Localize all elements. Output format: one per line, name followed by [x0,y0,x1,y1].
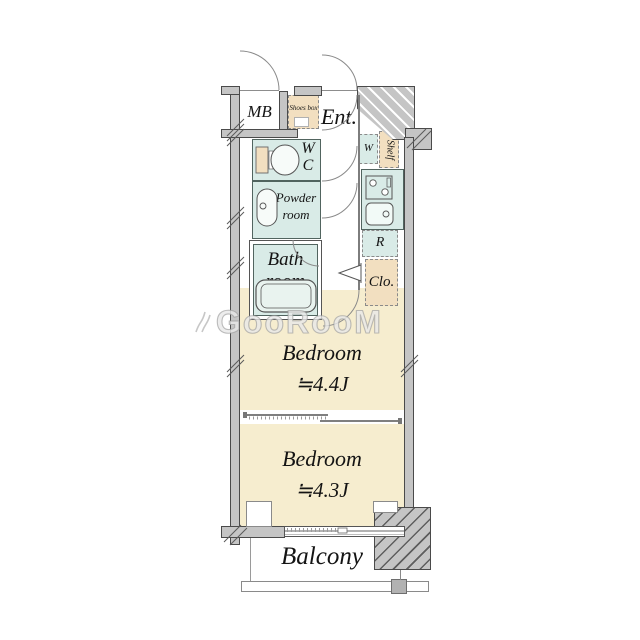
bedroom-2-name: Bedroom [240,442,404,475]
mb-door-threshold [240,90,279,91]
bedroom-2-label: Bedroom ≒4.3J [240,442,404,507]
mb-divider-wall [279,91,288,133]
watermark-text: GooRooM [216,304,383,341]
window-left-corner [246,501,272,527]
washer-label: W [364,143,373,155]
shelf-label: Shelf [384,140,395,160]
watermark-icon [192,308,212,336]
bottom-left-wall [221,526,285,538]
powder-room-label: Powder room [274,190,318,224]
room-entrance: Ent. [320,95,358,138]
bedroom-1-label: Bedroom ≒4.4J [240,336,404,401]
mb-label: MB [247,103,272,121]
balcony-side-line [250,537,251,582]
balcony-label: Balcony [281,543,363,570]
corridor [322,138,358,290]
watermark: GooRooM [192,302,432,342]
washer-space: W [359,134,378,164]
top-left-wall-stub [221,86,240,95]
floor-plan: MB Shoes box Ent. W C Powder room Bath r… [0,0,640,640]
railing-post [391,579,407,594]
balcony-pillar [374,507,431,570]
closet-label: Clo. [369,275,394,291]
kitchen-partition-wall [358,95,360,290]
room-wc: W C [252,139,321,181]
sliding-partition [240,410,404,424]
fridge-label: R [376,236,385,251]
top-center-wall-stub [294,86,322,96]
closet: Clo. [365,259,398,306]
shoes-box-label: Shoes box [289,105,318,112]
mb-bottom-wall [221,129,298,138]
door-arc-mb [240,51,279,90]
bedroom-1-size: ≒4.4J [240,369,404,401]
fridge-space: R [362,230,398,257]
bath-room-label: Bath room [254,249,317,293]
room-powder: Powder room [252,181,321,239]
room-mb: MB [240,95,279,129]
door-arc-entrance-outer [322,55,357,90]
railing-connector-line [400,570,401,580]
entrance-door-threshold [322,90,357,91]
window-balcony [284,526,405,537]
window-right-corner [373,501,398,513]
shoes-box: Shoes box [288,95,319,129]
kitchen-counter [361,169,404,230]
wc-label: W C [299,141,317,175]
shoes-box-shelf [294,117,309,127]
entrance-label: Ent. [321,105,357,128]
